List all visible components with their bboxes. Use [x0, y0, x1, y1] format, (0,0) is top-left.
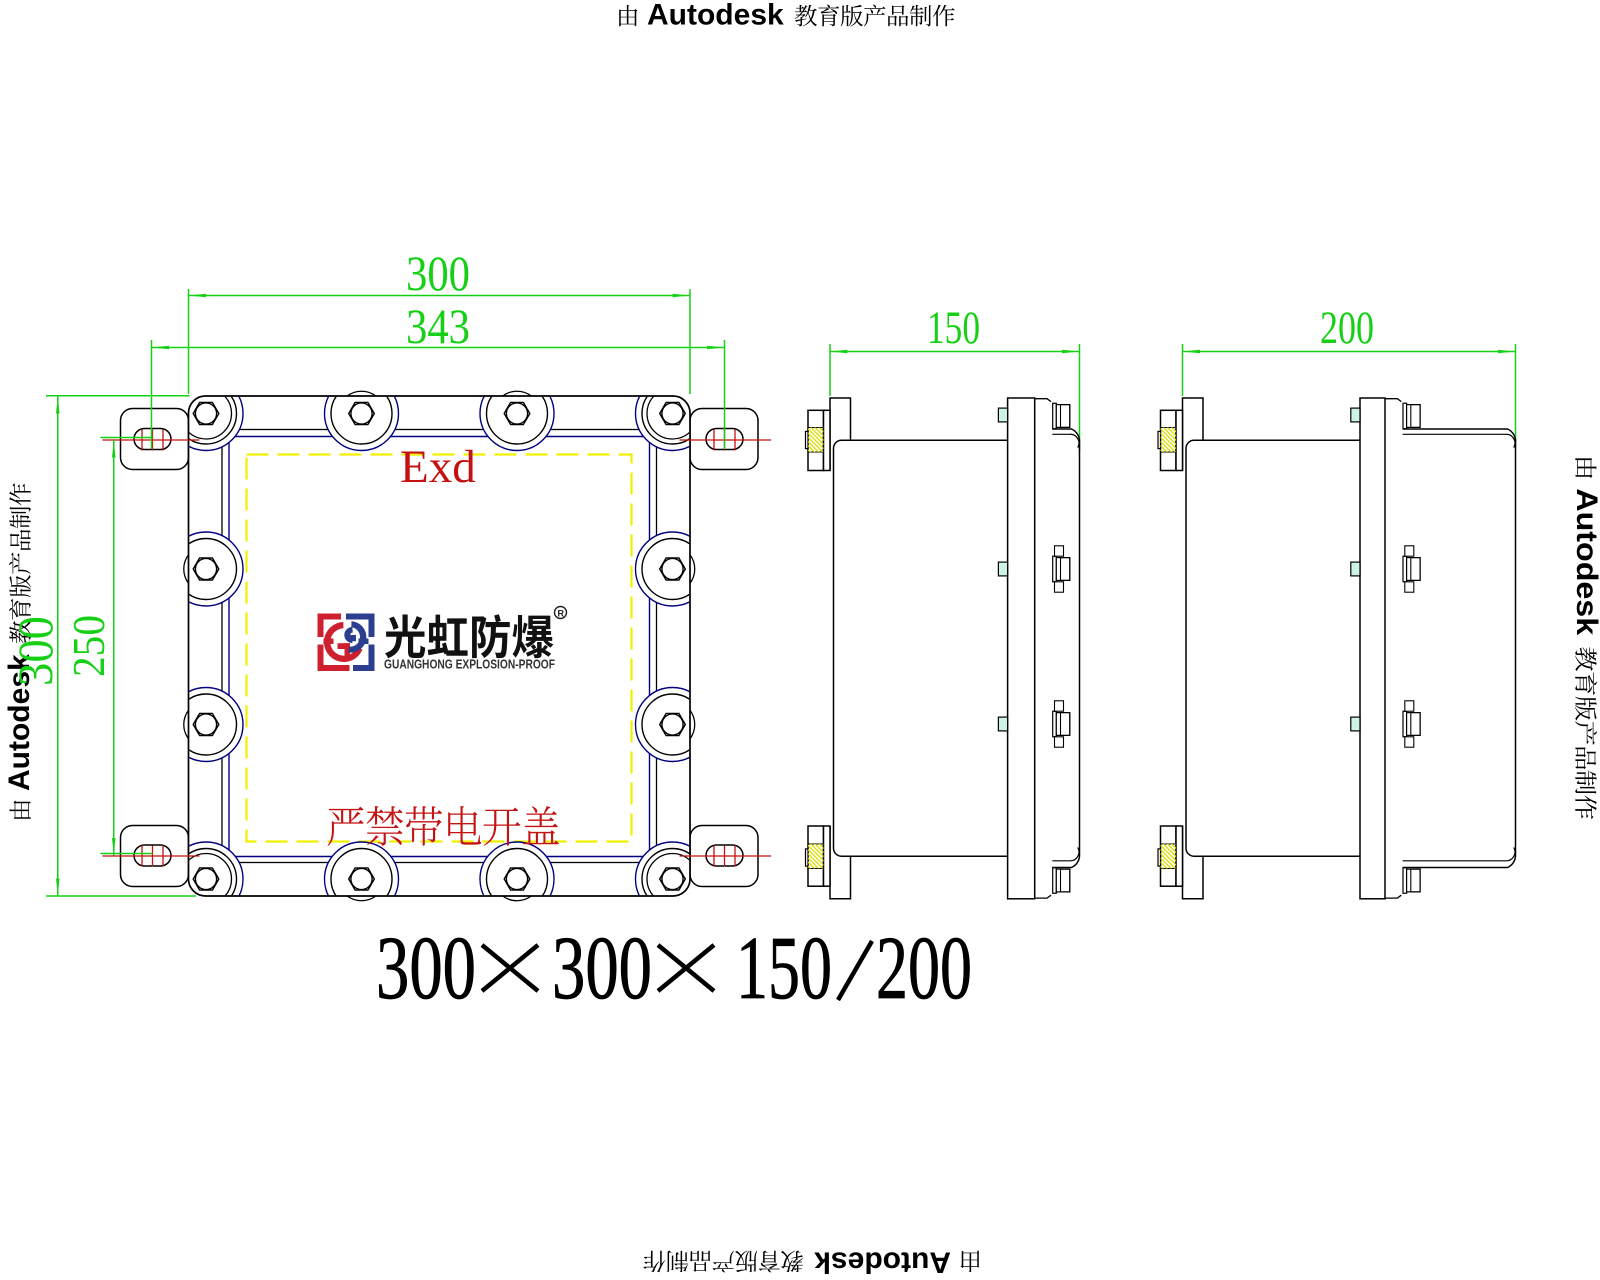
svg-text:300: 300 — [552, 919, 652, 1018]
svg-text:Exd: Exd — [400, 441, 476, 493]
svg-text:R: R — [558, 609, 565, 619]
svg-text:300: 300 — [376, 919, 476, 1018]
svg-text:GUANGHONG EXPLOSION-PROOF: GUANGHONG EXPLOSION-PROOF — [384, 657, 555, 672]
svg-text:343: 343 — [406, 298, 470, 354]
svg-text:150: 150 — [736, 919, 832, 1018]
svg-text:200: 200 — [876, 919, 972, 1018]
svg-text:300: 300 — [406, 245, 470, 301]
svg-text:150: 150 — [927, 302, 980, 354]
svg-text:200: 200 — [1320, 302, 1374, 354]
svg-text:250: 250 — [63, 615, 114, 677]
svg-text:300: 300 — [7, 616, 63, 686]
